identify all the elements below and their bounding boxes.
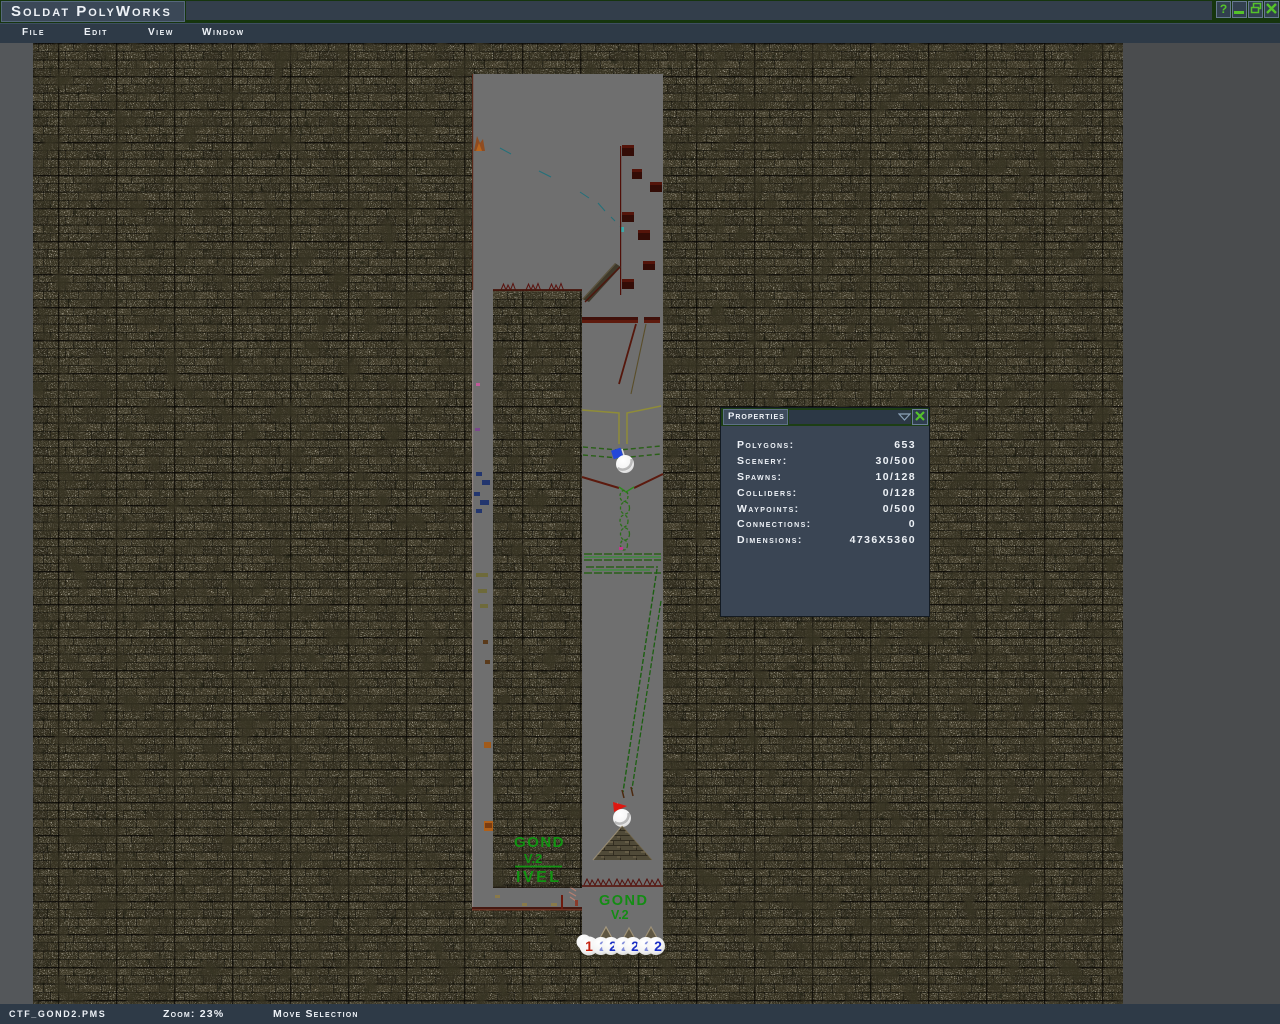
svg-text:2: 2 — [654, 938, 662, 954]
svg-text:GOND: GOND — [514, 834, 565, 851]
svg-text:1: 1 — [585, 938, 593, 954]
svg-text:V.2: V.2 — [611, 908, 629, 922]
svg-text:GOND: GOND — [599, 893, 649, 909]
svg-text:IVEL: IVEL — [516, 869, 562, 886]
svg-text:V.2: V.2 — [524, 851, 542, 866]
